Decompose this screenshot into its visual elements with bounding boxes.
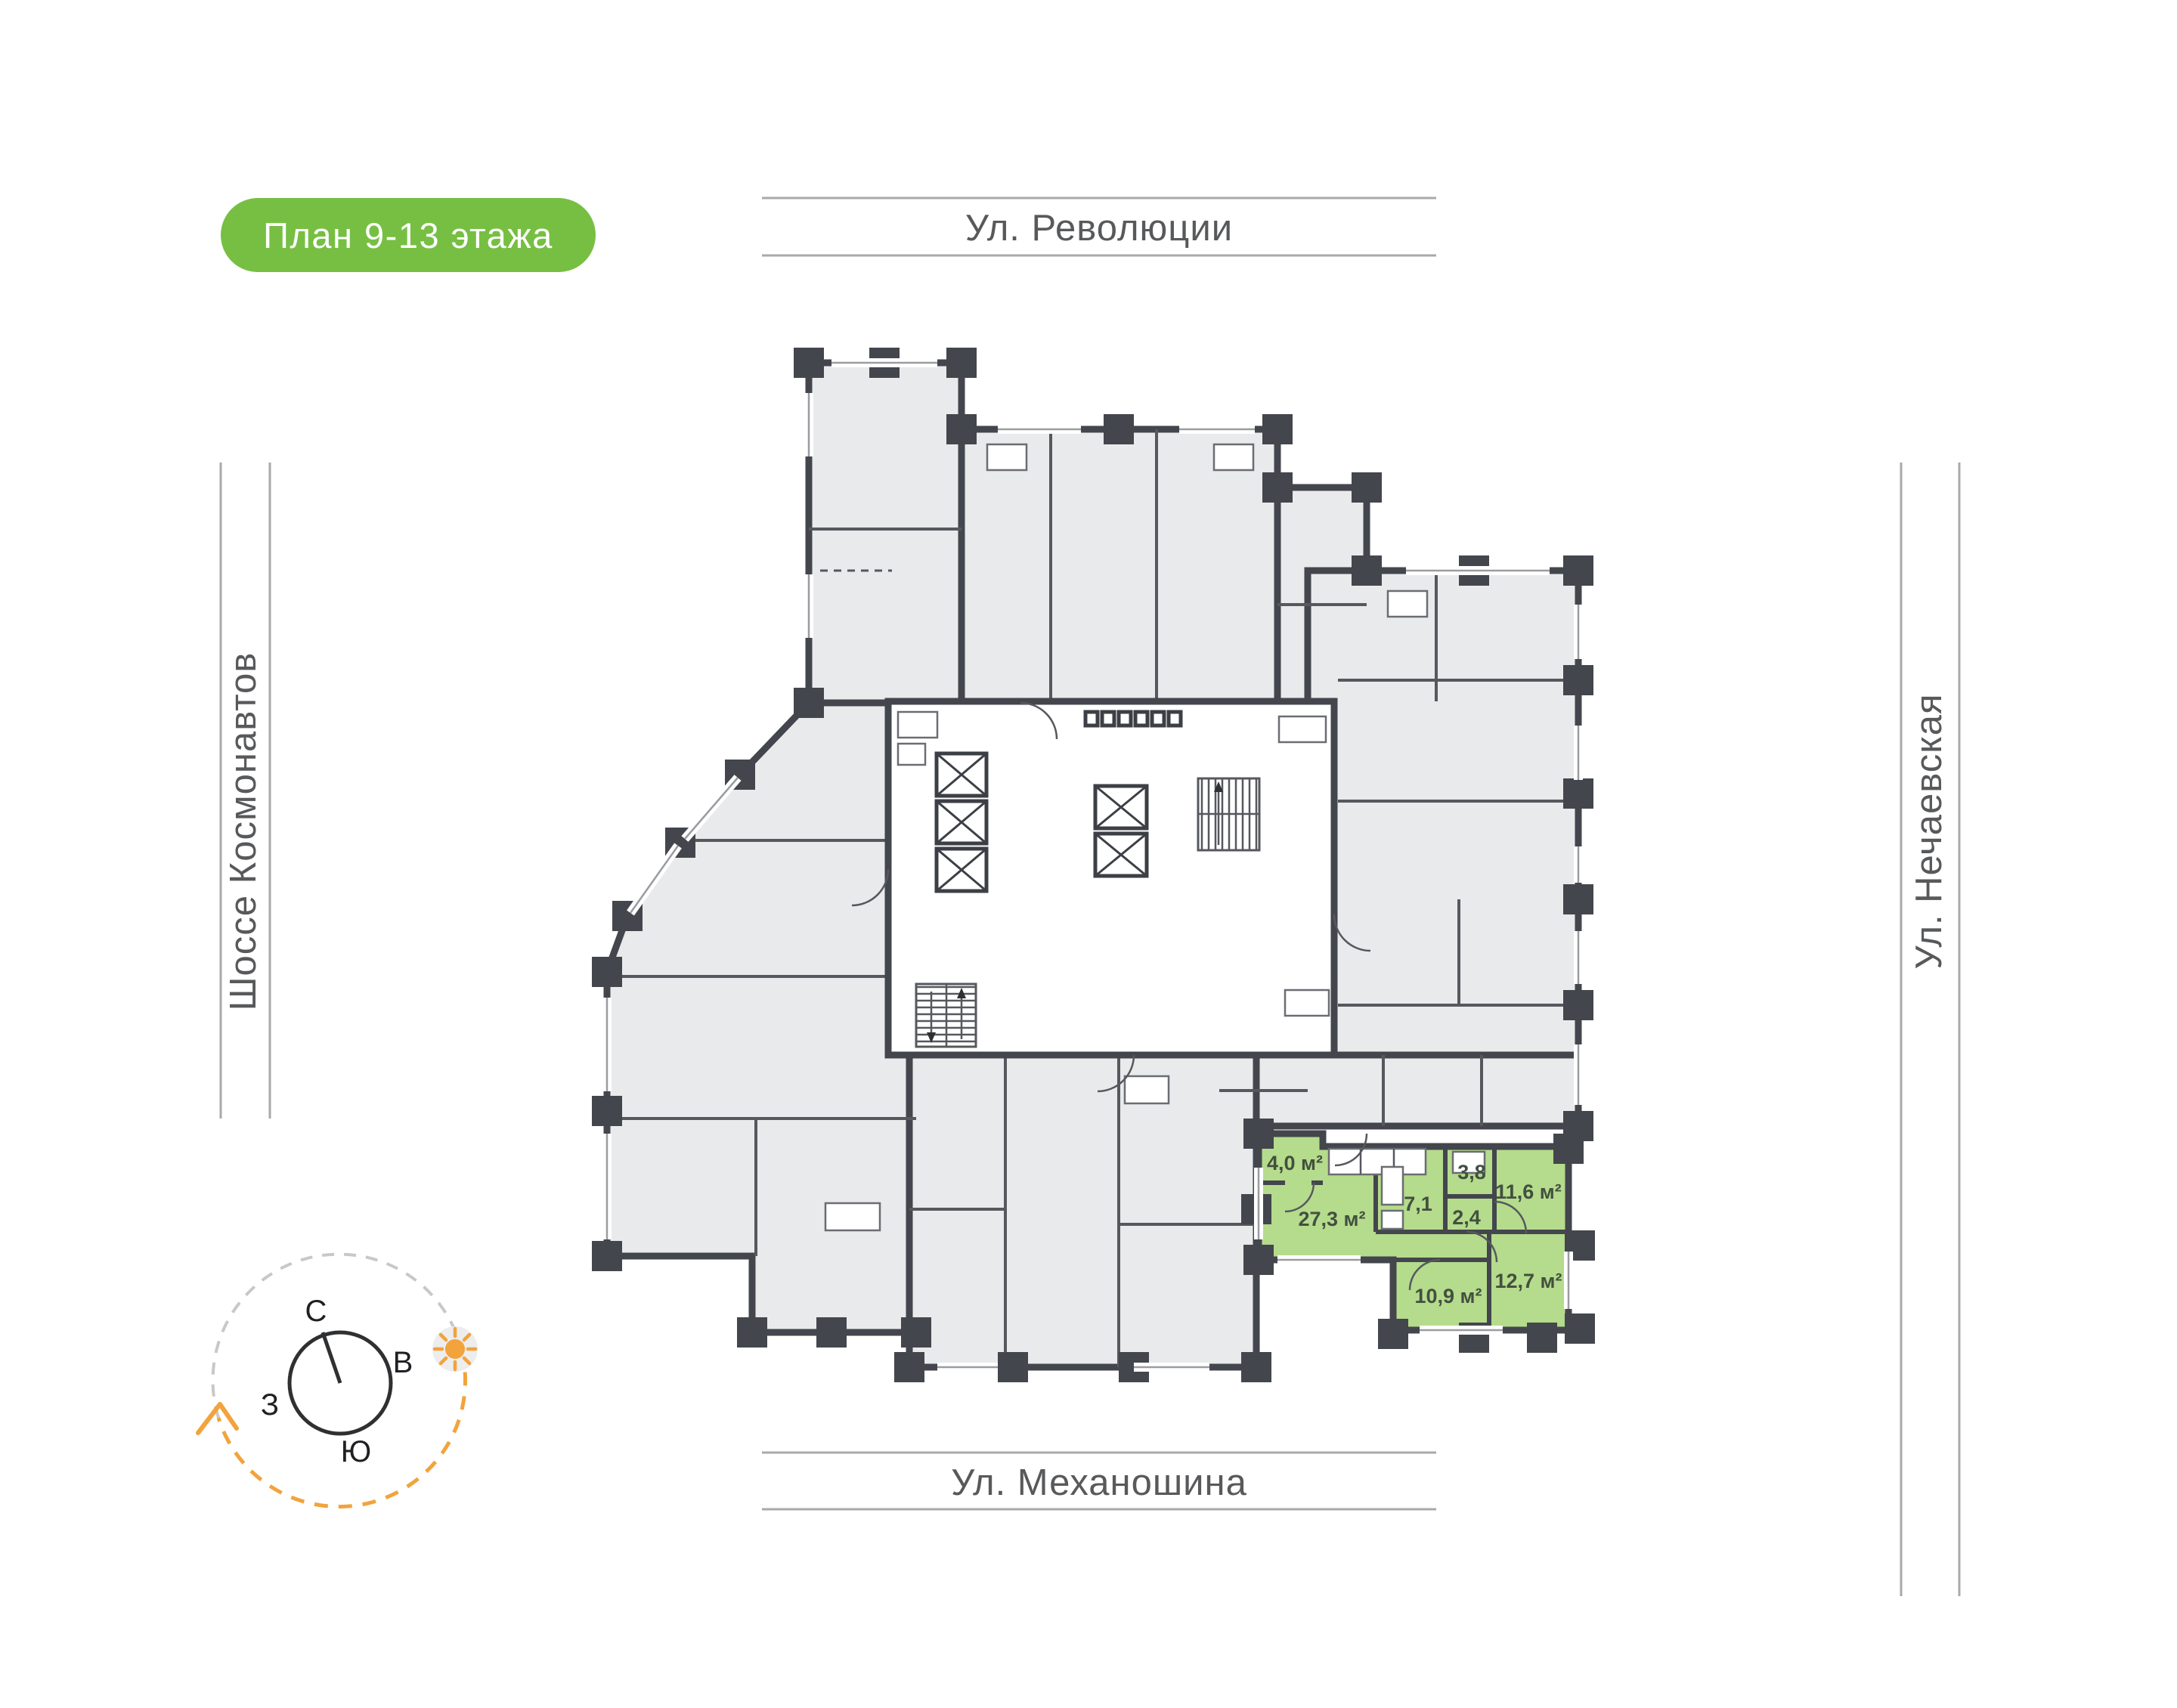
apartment-highlighted[interactable]: 4,0 м² 27,3 м² 7,1 3,8 2,4 11,6 м² 10,9 … (1259, 1134, 1568, 1330)
room-label-living-kitchen: 27,3 м² (1298, 1208, 1365, 1230)
wing-east (1308, 571, 1578, 1126)
street-top: Ул. Революции (762, 198, 1436, 255)
wing-south (909, 1055, 1256, 1367)
room-label-bedroom-1: 11,6 м² (1495, 1180, 1562, 1203)
compass-north-label: С (305, 1295, 327, 1328)
staircase-secondary (916, 984, 976, 1047)
street-label-right: Ул. Нечаевская (1909, 694, 1949, 970)
compass: С В З Ю (198, 1255, 478, 1507)
wing-west (607, 703, 916, 1332)
wing-northwest-block (809, 363, 962, 703)
street-label-bottom: Ул. Механошина (951, 1462, 1247, 1503)
elevator-bank-left (937, 753, 986, 891)
compass-south-label: Ю (341, 1435, 371, 1468)
room-label-bathroom: 3,8 (1457, 1161, 1486, 1184)
compass-east-label: В (393, 1346, 413, 1379)
floor-plan-page: Ул. Революции Ул. Механошина Шоссе Космо… (0, 0, 2177, 1708)
street-right: Ул. Нечаевская (1901, 463, 1959, 1596)
room-label-bedroom-3: 12,7 м² (1494, 1270, 1562, 1292)
room-label-bedroom-2: 10,9 м² (1414, 1285, 1482, 1307)
street-label-top: Ул. Революции (965, 208, 1233, 249)
compass-west-label: З (261, 1388, 279, 1422)
staircase-main (1198, 778, 1259, 850)
floor-badge: План 9-13 этажа (221, 198, 596, 272)
room-label-wc: 2,4 (1452, 1206, 1481, 1229)
sun-icon (432, 1326, 478, 1372)
street-left: Шоссе Космонавтов (221, 463, 270, 1119)
street-bottom: Ул. Механошина (762, 1453, 1436, 1509)
room-label-corridor: 7,1 (1404, 1193, 1432, 1215)
floor-badge-label: План 9-13 этажа (263, 215, 553, 255)
street-label-left: Шоссе Космонавтов (223, 652, 264, 1011)
room-label-hallway: 4,0 м² (1267, 1152, 1323, 1174)
building-plan: 4,0 м² 27,3 м² 7,1 3,8 2,4 11,6 м² 10,9 … (592, 348, 1595, 1382)
building-core (888, 701, 1334, 1055)
